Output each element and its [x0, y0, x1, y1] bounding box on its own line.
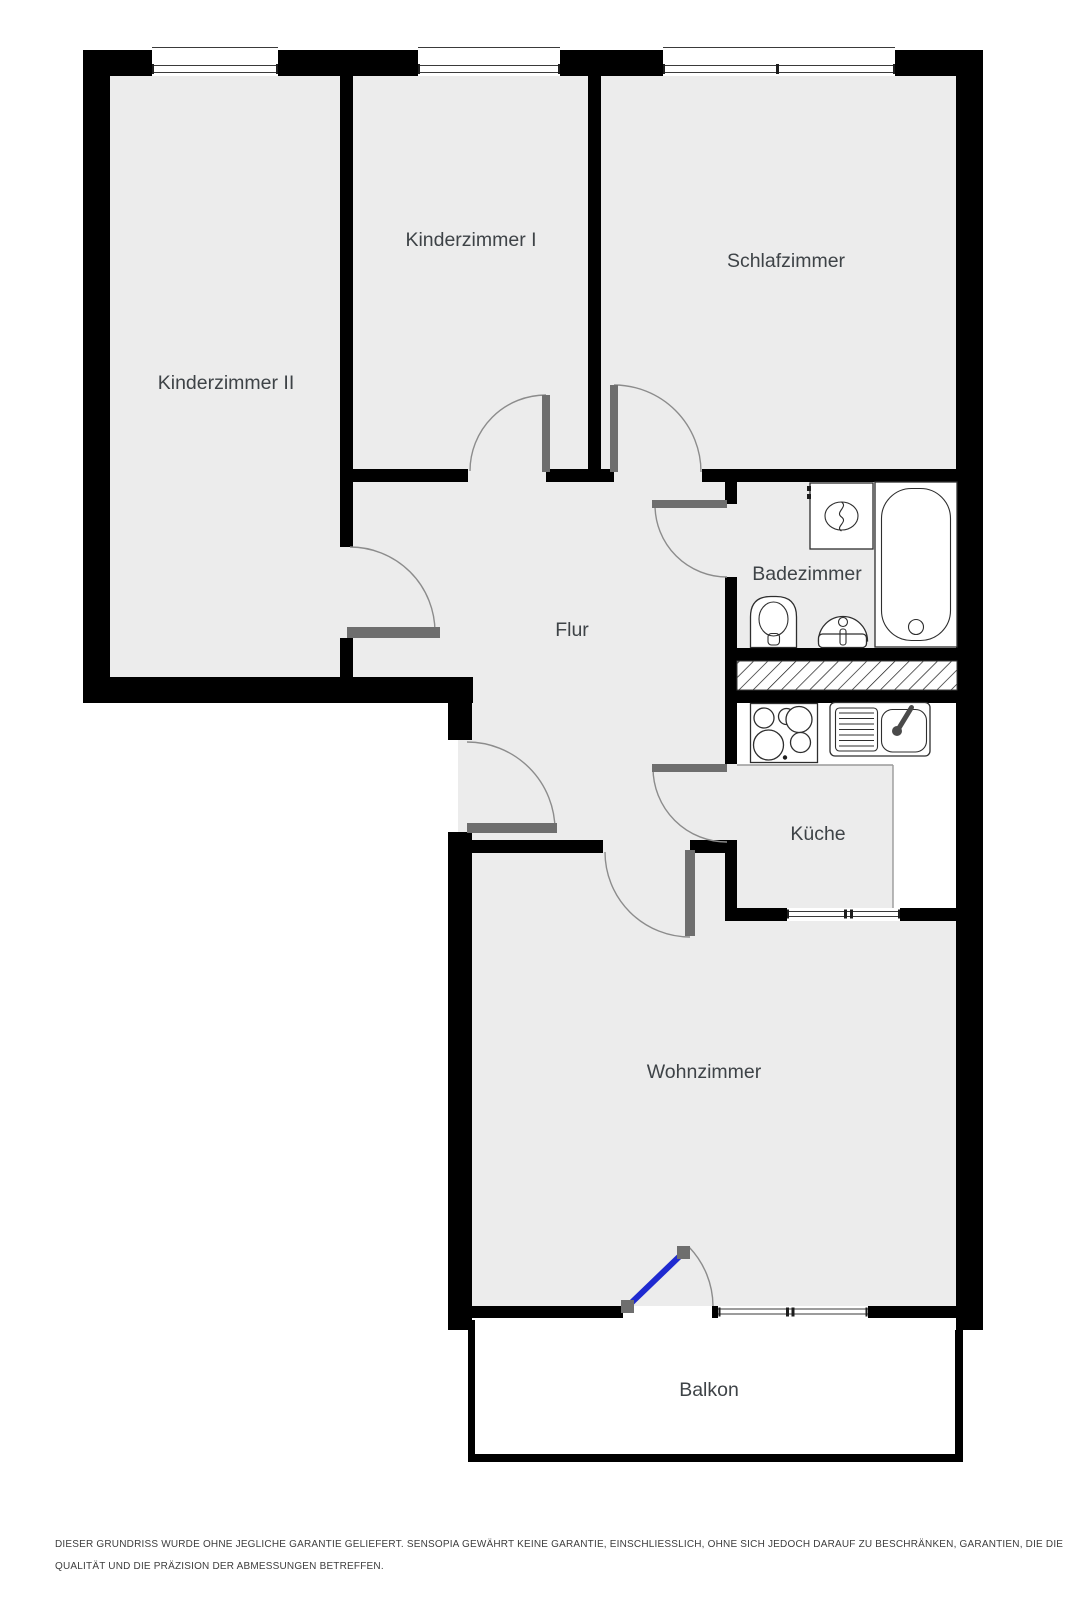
disclaimer-line-2: QUALITÄT UND DIE PRÄZISION DER ABMESSUNG…: [55, 1556, 1045, 1578]
wall-segment: [725, 648, 957, 661]
window-schlafzimmer-icon: [663, 48, 895, 77]
wall-segment: [725, 908, 787, 921]
wall-segment: [448, 832, 472, 1330]
wall-segment: [83, 50, 110, 703]
wall-segment: [588, 76, 601, 469]
wall-segment: [868, 1306, 875, 1318]
wall-segment: [83, 677, 473, 703]
room-label-schlafzimmer: Schlafzimmer: [727, 250, 846, 272]
kitchen-sink-icon: [830, 703, 930, 757]
toilet-icon: [751, 597, 797, 648]
room-label-kinderzimmer2: Kinderzimmer II: [158, 372, 295, 394]
balcony-parapet: [468, 1320, 475, 1462]
room-floor-kinderzimmer1: [353, 76, 588, 469]
shaft-hatch-icon: [737, 661, 957, 690]
wall-segment: [340, 638, 353, 677]
window-balkon-icon: [718, 1306, 868, 1318]
disclaimer: DIESER GRUNDRISS WURDE OHNE JEGLICHE GAR…: [55, 1534, 1045, 1578]
window-kueche-icon: [787, 908, 900, 921]
wall-segment: [712, 1306, 718, 1318]
wall-segment: [448, 1306, 623, 1318]
wall-segment: [278, 50, 418, 76]
wall-segment: [340, 469, 468, 482]
wall-segment: [690, 840, 737, 853]
wall-segment: [702, 469, 957, 482]
room-label-balkon: Balkon: [679, 1379, 739, 1401]
wall-segment: [725, 577, 737, 764]
balcony-parapet: [955, 1330, 963, 1462]
disclaimer-line-1: DIESER GRUNDRISS WURDE OHNE JEGLICHE GAR…: [55, 1534, 1045, 1556]
wall-segment: [560, 50, 663, 76]
window-kinderzimmer2-icon: [152, 48, 278, 77]
wall-segment: [725, 690, 957, 703]
room-floor-flur: [353, 482, 725, 840]
room-label-kinderzimmer1: Kinderzimmer I: [405, 229, 536, 251]
wall-segment: [472, 840, 603, 853]
room-label-wohnzimmer: Wohnzimmer: [647, 1061, 762, 1083]
wall-segment: [875, 1306, 957, 1318]
bathtub-icon: [875, 482, 957, 647]
room-label-kueche: Küche: [790, 823, 845, 845]
room-floor-schlafzimmer: [601, 76, 956, 469]
room-label-badezimmer: Badezimmer: [752, 563, 862, 585]
balcony-parapet: [468, 1454, 963, 1462]
room-label-flur: Flur: [555, 619, 589, 641]
floor-plan-drawing: Kinderzimmer II Kinderzimmer I Schlafzim…: [0, 0, 1067, 1600]
wall-segment: [546, 469, 614, 482]
wall-segment: [448, 702, 472, 740]
wall-segment: [900, 908, 957, 921]
floor-plan-page: Kinderzimmer II Kinderzimmer I Schlafzim…: [0, 0, 1067, 1600]
stove-icon: [751, 704, 818, 763]
wall-segment: [956, 50, 983, 1330]
washing-machine-icon: [807, 483, 873, 549]
window-kinderzimmer1-icon: [418, 48, 560, 77]
wall-segment: [725, 853, 737, 908]
